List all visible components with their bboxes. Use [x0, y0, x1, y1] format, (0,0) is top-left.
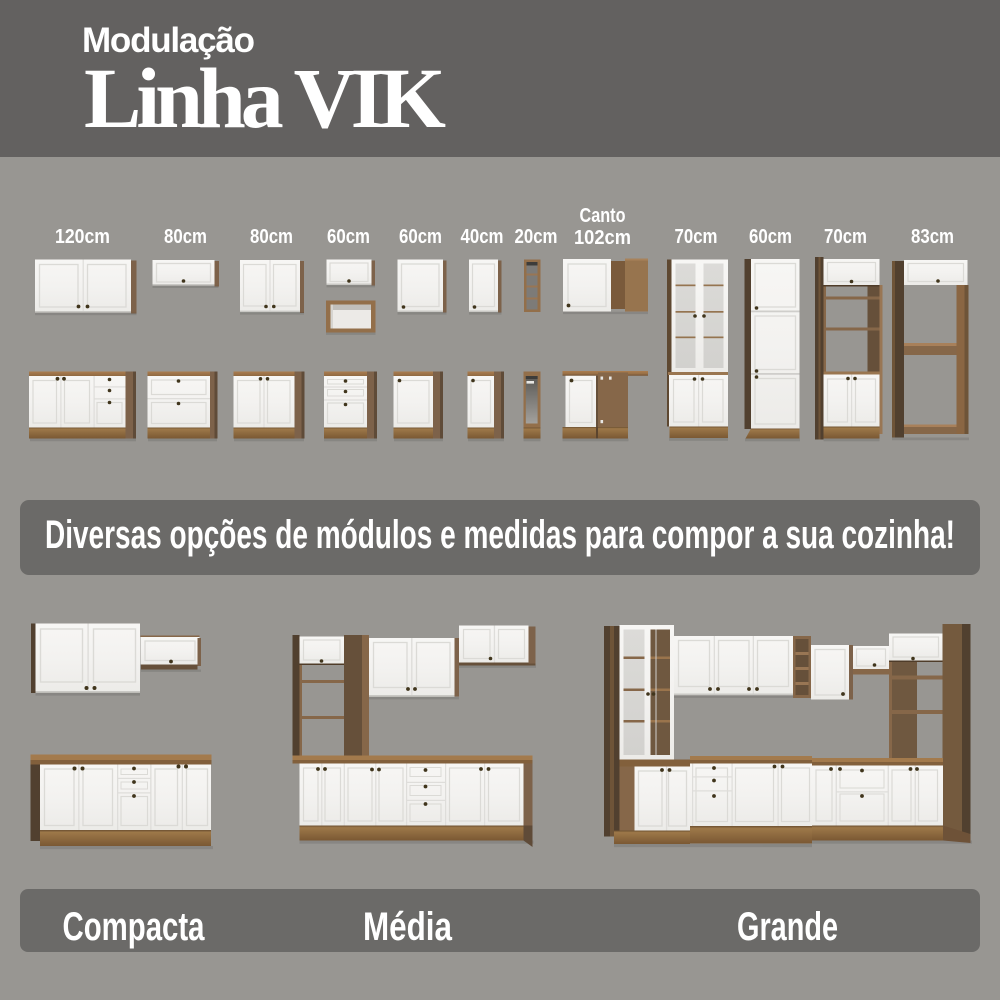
svg-text:60cm: 60cm	[749, 225, 792, 248]
svg-text:Linha VIK: Linha VIK	[84, 50, 446, 146]
svg-text:102cm: 102cm	[574, 226, 631, 249]
svg-text:83cm: 83cm	[911, 225, 954, 248]
svg-text:Média: Média	[363, 905, 453, 949]
svg-text:80cm: 80cm	[164, 225, 207, 248]
svg-text:120cm: 120cm	[55, 225, 110, 248]
svg-text:70cm: 70cm	[824, 225, 867, 248]
svg-text:60cm: 60cm	[399, 225, 442, 248]
svg-text:40cm: 40cm	[461, 225, 504, 248]
svg-text:80cm: 80cm	[250, 225, 293, 248]
svg-text:Diversas opções de módulos e m: Diversas opções de módulos e medidas par…	[45, 513, 955, 557]
svg-text:Canto: Canto	[580, 204, 626, 227]
svg-text:Grande: Grande	[737, 905, 838, 949]
svg-text:Compacta: Compacta	[63, 905, 206, 949]
svg-text:20cm: 20cm	[515, 225, 558, 248]
svg-text:60cm: 60cm	[327, 225, 370, 248]
svg-text:70cm: 70cm	[675, 225, 718, 248]
